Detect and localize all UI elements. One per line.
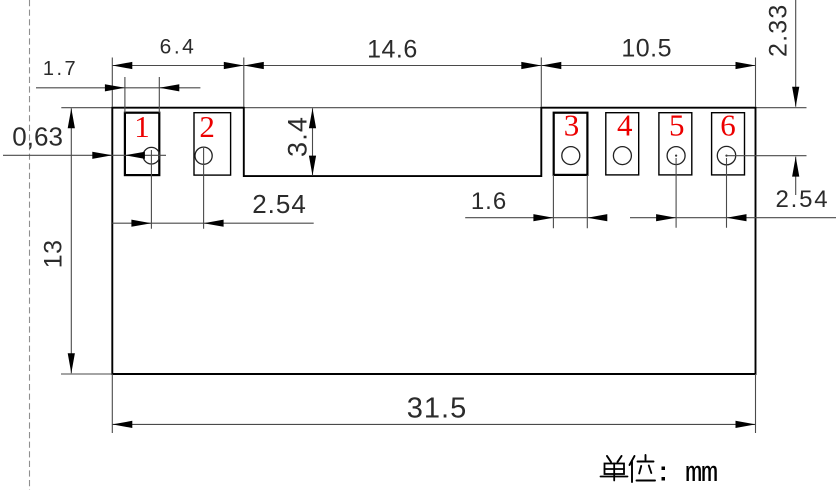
svg-text:mm: mm (685, 457, 717, 490)
svg-text:5: 5 (669, 108, 685, 143)
svg-text:10.5: 10.5 (621, 34, 672, 62)
svg-text:1: 1 (134, 109, 150, 144)
svg-text:4: 4 (617, 108, 633, 143)
svg-text:3: 3 (564, 108, 580, 143)
svg-text:31.5: 31.5 (407, 393, 467, 425)
svg-text:2.54: 2.54 (776, 186, 830, 213)
svg-text:2.33: 2.33 (765, 4, 793, 57)
svg-text:14.6: 14.6 (367, 36, 418, 64)
svg-text:6: 6 (720, 108, 736, 143)
svg-text:1.7: 1.7 (43, 58, 78, 80)
svg-text:6.4: 6.4 (160, 36, 197, 59)
svg-text:3.4: 3.4 (283, 116, 313, 157)
svg-text:0,63: 0,63 (12, 122, 63, 152)
svg-text:2.54: 2.54 (252, 189, 307, 219)
svg-text:2: 2 (199, 109, 215, 144)
svg-text:13: 13 (40, 239, 68, 268)
svg-text:1.6: 1.6 (471, 188, 507, 215)
